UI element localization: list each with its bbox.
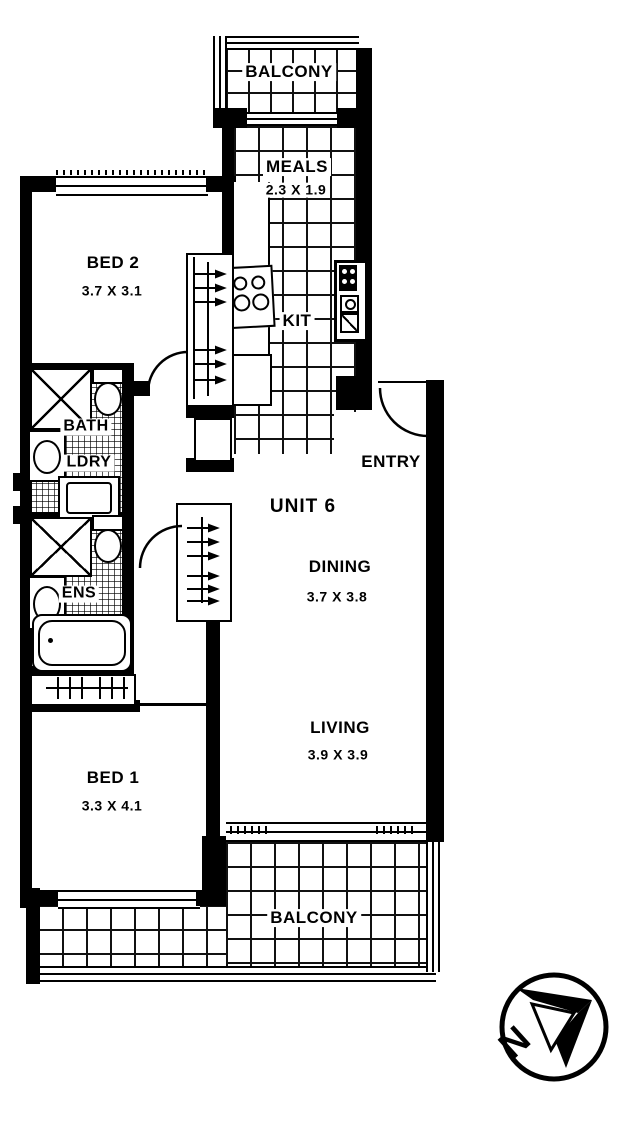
room-label-kit: KIT	[280, 312, 315, 330]
north-arrow-icon: N	[491, 975, 606, 1079]
room-dims-meals: 2.3 X 1.9	[263, 183, 330, 198]
floor-plan: N BALCONY MEALS 2.3 X 1.9 BED 2 3.7 X 3.…	[0, 0, 640, 1124]
room-label-living: LIVING	[310, 719, 370, 737]
room-label-balcony-bottom: BALCONY	[267, 909, 361, 927]
robe-hall-rail	[187, 517, 217, 604]
door-arc-entry	[380, 388, 428, 436]
room-dims-dining: 3.7 X 3.8	[307, 590, 368, 605]
compass-north-label: N	[491, 1018, 538, 1066]
room-label-balcony-top: BALCONY	[242, 63, 336, 81]
door-arc-ens	[140, 526, 182, 568]
door-arc-bed2	[148, 352, 188, 392]
room-dims-bed1: 3.3 X 4.1	[82, 799, 143, 814]
room-dims-living: 3.9 X 3.9	[308, 748, 369, 763]
room-label-entry: ENTRY	[361, 453, 421, 471]
room-label-bed2: BED 2	[87, 254, 140, 272]
room-label-meals: MEALS	[263, 158, 331, 176]
room-label-ldry: LDRY	[64, 455, 115, 472]
room-dims-bed2: 3.7 X 3.1	[82, 284, 143, 299]
room-label-ens: ENS	[59, 586, 99, 603]
robe-bed1-rail	[46, 677, 128, 699]
room-label-dining: DINING	[309, 558, 372, 576]
unit-title: UNIT 6	[270, 497, 336, 517]
robe-bed2-rail	[194, 262, 224, 396]
room-label-bath: BATH	[60, 419, 111, 436]
room-label-bed1: BED 1	[87, 769, 140, 787]
